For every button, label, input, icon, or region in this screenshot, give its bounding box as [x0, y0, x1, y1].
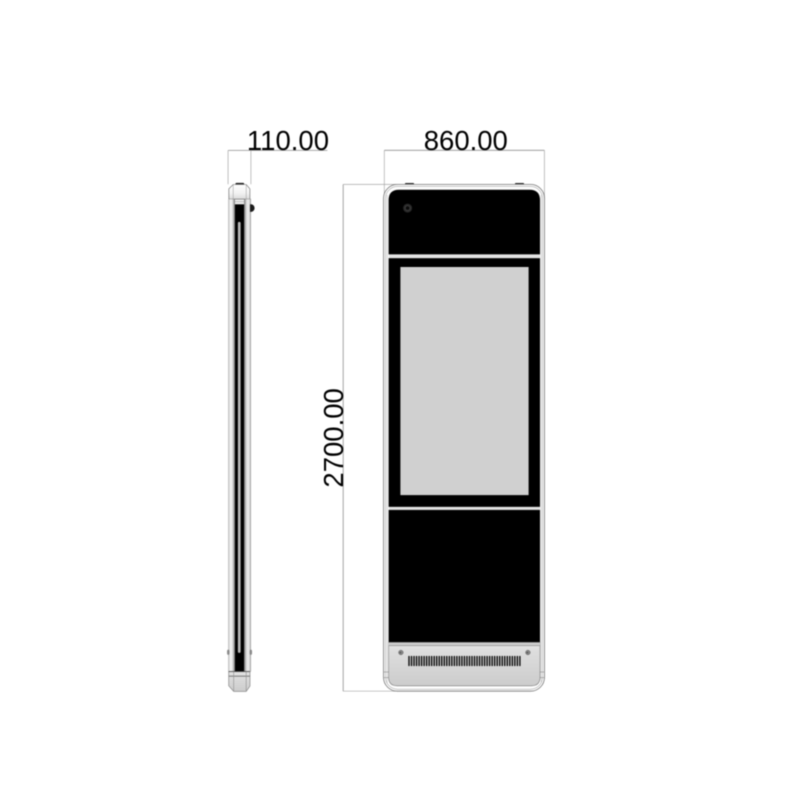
svg-text:110.00: 110.00: [247, 125, 329, 156]
svg-text:2700.00: 2700.00: [318, 388, 349, 487]
svg-text:860.00: 860.00: [424, 125, 508, 156]
